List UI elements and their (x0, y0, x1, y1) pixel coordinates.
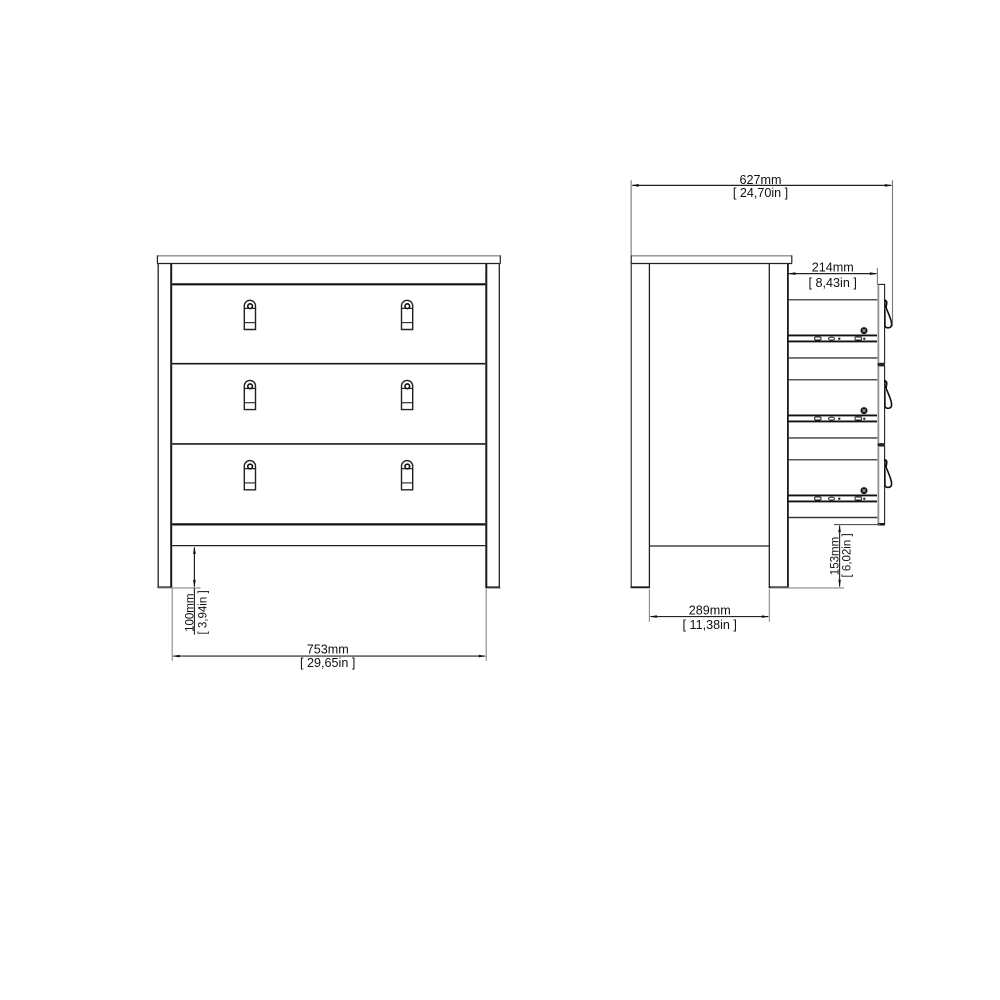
svg-text:753mm: 753mm (307, 643, 349, 657)
svg-text:153mm: 153mm (830, 537, 842, 575)
svg-text:[ 6,02in ]: [ 6,02in ] (841, 533, 853, 577)
svg-text:214mm: 214mm (812, 260, 854, 274)
svg-text:[ 29,65in ]: [ 29,65in ] (300, 656, 355, 670)
svg-text:[ 24,70in ]: [ 24,70in ] (733, 186, 788, 200)
svg-text:[ 8,43in ]: [ 8,43in ] (809, 276, 857, 290)
svg-text:100mm: 100mm (185, 594, 197, 632)
svg-text:[ 3,94in ]: [ 3,94in ] (197, 590, 209, 634)
svg-text:[ 11,38in ]: [ 11,38in ] (683, 618, 737, 632)
svg-text:289mm: 289mm (689, 604, 731, 618)
